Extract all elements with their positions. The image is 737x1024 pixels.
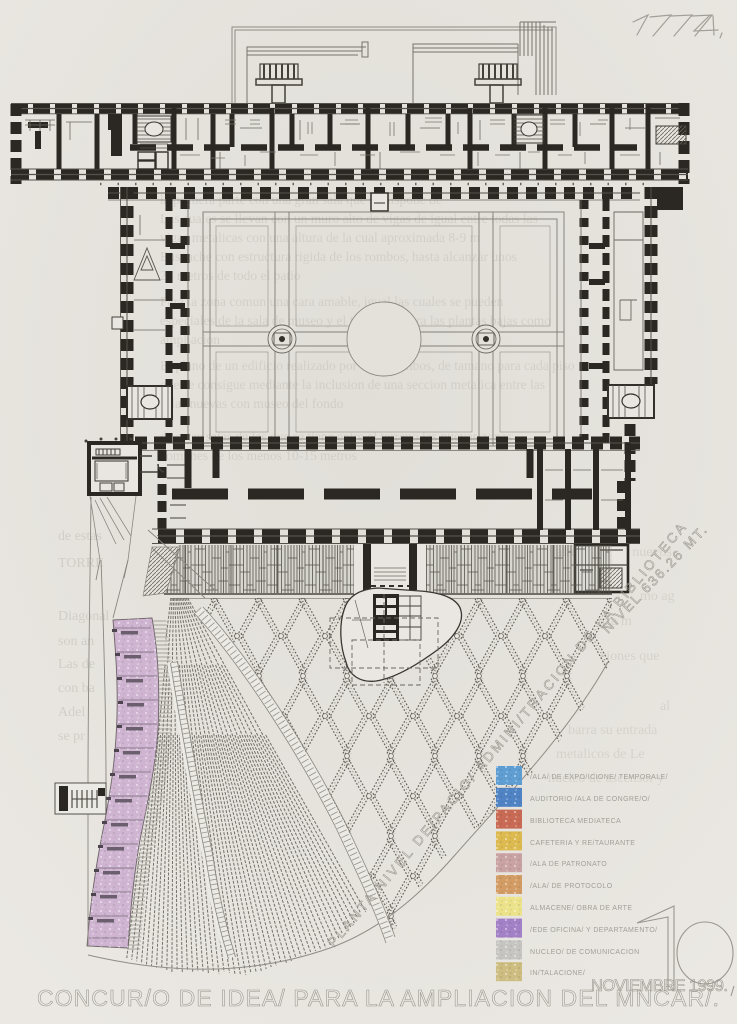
svg-text:CAFETERIA Y RE/TAURANTE: CAFETERIA Y RE/TAURANTE [530, 840, 635, 847]
svg-text:vigas metalicas con una altura: vigas metalicas con una altura de la cua… [160, 230, 481, 245]
svg-text:Adel: Adel [58, 705, 85, 720]
svg-text:Las cuales se llevan con un mu: Las cuales se llevan con un muro alto de… [160, 211, 538, 226]
svg-text:/EDE OFICINA/ Y DEPARTAMENTO/: /EDE OFICINA/ Y DEPARTAMENTO/ [530, 927, 658, 934]
svg-text:se pr: se pr [58, 729, 85, 744]
svg-text:al: al [660, 699, 670, 714]
svg-text:NUCLEO/ DE COMUNICACION: NUCLEO/ DE COMUNICACION [530, 949, 640, 956]
svg-text:/ALA/ DE EXPO/ICIONE/ TEMPORAL: /ALA/ DE EXPO/ICIONE/ TEMPORALE/ [530, 774, 668, 781]
svg-text:Para la zona comun una cara am: Para la zona comun una cara amable, igua… [160, 294, 504, 309]
svg-text:barra su entrada: barra su entrada [568, 723, 658, 738]
svg-text:Las de: Las de [58, 657, 95, 672]
svg-text:ALMACENE/ OBRA DE ARTE: ALMACENE/ OBRA DE ARTE [530, 905, 632, 912]
svg-text:Diagonal: Diagonal [58, 609, 109, 624]
svg-text:BIBLIOTECA MEDIATECA: BIBLIOTECA MEDIATECA [530, 818, 621, 825]
svg-text:Ensanche con estructura rigida: Ensanche con estructura rigida de los ro… [160, 249, 517, 264]
svg-text:con ba: con ba [58, 681, 96, 696]
svg-text:CONCUR/O DE IDEA/ PARA LA AMPL: CONCUR/O DE IDEA/ PARA LA AMPLIACION DEL… [37, 985, 721, 1011]
svg-text:IN/TALACIONE/: IN/TALACIONE/ [530, 970, 585, 977]
svg-text:/ALA DE PATRONATO: /ALA DE PATRONATO [530, 861, 607, 868]
svg-text:que se consigue mediante la in: que se consigue mediante la inclusion de… [160, 377, 545, 392]
svg-text:metalicos de Le: metalicos de Le [556, 747, 645, 762]
svg-text:AUDITORIO /ALA DE CONGRE/O/: AUDITORIO /ALA DE CONGRE/O/ [530, 796, 650, 803]
svg-text:/ALA/ DE PROTOCOLO: /ALA/ DE PROTOCOLO [530, 883, 613, 890]
svg-text:TORRE: TORRE [58, 556, 104, 571]
